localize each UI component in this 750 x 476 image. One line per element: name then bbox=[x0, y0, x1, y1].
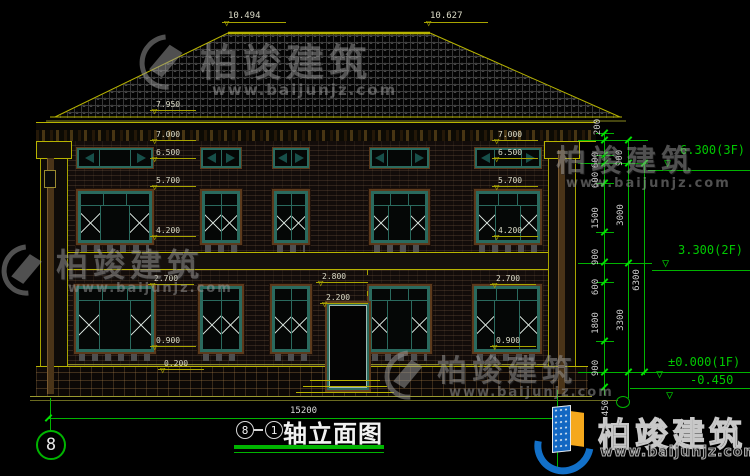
axis-number: 8 bbox=[46, 435, 56, 455]
ext-line bbox=[630, 388, 658, 389]
watermark: 柏竣建筑 www.baijunjz.com bbox=[556, 136, 731, 191]
elevation-triangle: ▽ bbox=[662, 256, 669, 270]
dim-text: 10.494 bbox=[228, 11, 261, 21]
window-2f bbox=[369, 189, 430, 245]
dim-chain-total: 6300 bbox=[632, 269, 642, 291]
watermark-logo-icon bbox=[375, 340, 444, 409]
level-label: 6.500 bbox=[492, 148, 538, 159]
level-label: 5.700 bbox=[150, 176, 196, 187]
dim-chain-total-line bbox=[644, 163, 645, 375]
wall-lamp bbox=[44, 170, 56, 188]
dim-ridge-right: 10.627 bbox=[424, 12, 488, 23]
dim-ridge-left: 10.494 bbox=[222, 12, 286, 23]
dim-chain-fine: 200 bbox=[593, 119, 603, 135]
elevation-ground: -0.450 bbox=[690, 373, 733, 387]
dim-text: 10.627 bbox=[430, 11, 463, 21]
dim-chain-floor: 3300 bbox=[616, 309, 626, 331]
level-label: 0.900 bbox=[150, 336, 196, 347]
door-step bbox=[303, 386, 387, 387]
left-capital bbox=[36, 141, 72, 159]
dim-chain-fine: 1800 bbox=[591, 312, 601, 334]
window-2f bbox=[76, 189, 154, 245]
level-label: 6.500 bbox=[150, 148, 196, 159]
elevation-triangle: ▽ bbox=[666, 388, 673, 402]
brand-url: www.baijunjz.com bbox=[600, 444, 750, 460]
title-axis-end: 1 bbox=[265, 421, 283, 439]
window-1f bbox=[367, 284, 432, 354]
elevation-2f: 3.300(2F) bbox=[678, 243, 743, 257]
dim-door-top: 2.800 bbox=[316, 272, 368, 283]
title-underline-thin bbox=[234, 452, 384, 453]
transom-window bbox=[272, 147, 310, 169]
level-line-2f bbox=[652, 270, 750, 271]
watermark-logo-icon bbox=[0, 234, 63, 306]
level-label: 7.950 bbox=[150, 100, 196, 111]
door-step bbox=[296, 392, 394, 393]
watermark: 柏竣建筑 www.baijunjz.com bbox=[142, 32, 397, 99]
level-label: 7.000 bbox=[492, 130, 538, 141]
elevation-drawing-canvas: 10.494 10.627 7.950 7.000 6.500 5.700 4.… bbox=[0, 0, 750, 476]
dim-chain-fine: 600 bbox=[591, 279, 601, 295]
leader-circle bbox=[616, 396, 630, 408]
door-step bbox=[310, 380, 380, 381]
watermark: 柏竣建筑 www.baijunjz.com bbox=[385, 346, 614, 400]
level-label: 7.000 bbox=[150, 130, 196, 141]
level-label: 0.200 bbox=[158, 359, 204, 370]
axis-bubble: 8 bbox=[36, 430, 66, 460]
level-label: 2.700 bbox=[490, 274, 536, 285]
ground-line-2 bbox=[30, 400, 618, 401]
elevation-triangle: ▽ bbox=[656, 367, 663, 381]
title-dash bbox=[254, 429, 263, 431]
brand-logo-building-orange bbox=[571, 411, 584, 447]
transom-window bbox=[76, 147, 154, 169]
title-underline-thick bbox=[234, 445, 384, 449]
brand-logo-building-blue bbox=[552, 405, 571, 453]
level-label: 4.200 bbox=[150, 226, 196, 237]
elevation-1f: ±0.000(1F) bbox=[668, 355, 740, 369]
transom-window bbox=[200, 147, 242, 169]
dim-chain-floor: 3000 bbox=[616, 204, 626, 226]
entrance-door bbox=[325, 301, 371, 392]
level-label: 5.700 bbox=[492, 176, 538, 187]
dim-chain-fine: 1500 bbox=[591, 207, 601, 229]
ext-line bbox=[578, 263, 652, 264]
window-1f bbox=[270, 284, 312, 354]
drawing-title: 轴立面图 bbox=[283, 414, 383, 449]
dim-door-opening: 2.200 bbox=[320, 293, 368, 304]
watermark: 柏竣建筑 www.baijunjz.com bbox=[0, 240, 233, 296]
title-axis-start: 8 bbox=[236, 421, 254, 439]
window-2f bbox=[272, 189, 310, 245]
transom-window bbox=[369, 147, 430, 169]
window-2f bbox=[200, 189, 242, 245]
dim-chain-fine: 900 bbox=[591, 249, 601, 265]
level-label: 4.200 bbox=[492, 226, 538, 237]
